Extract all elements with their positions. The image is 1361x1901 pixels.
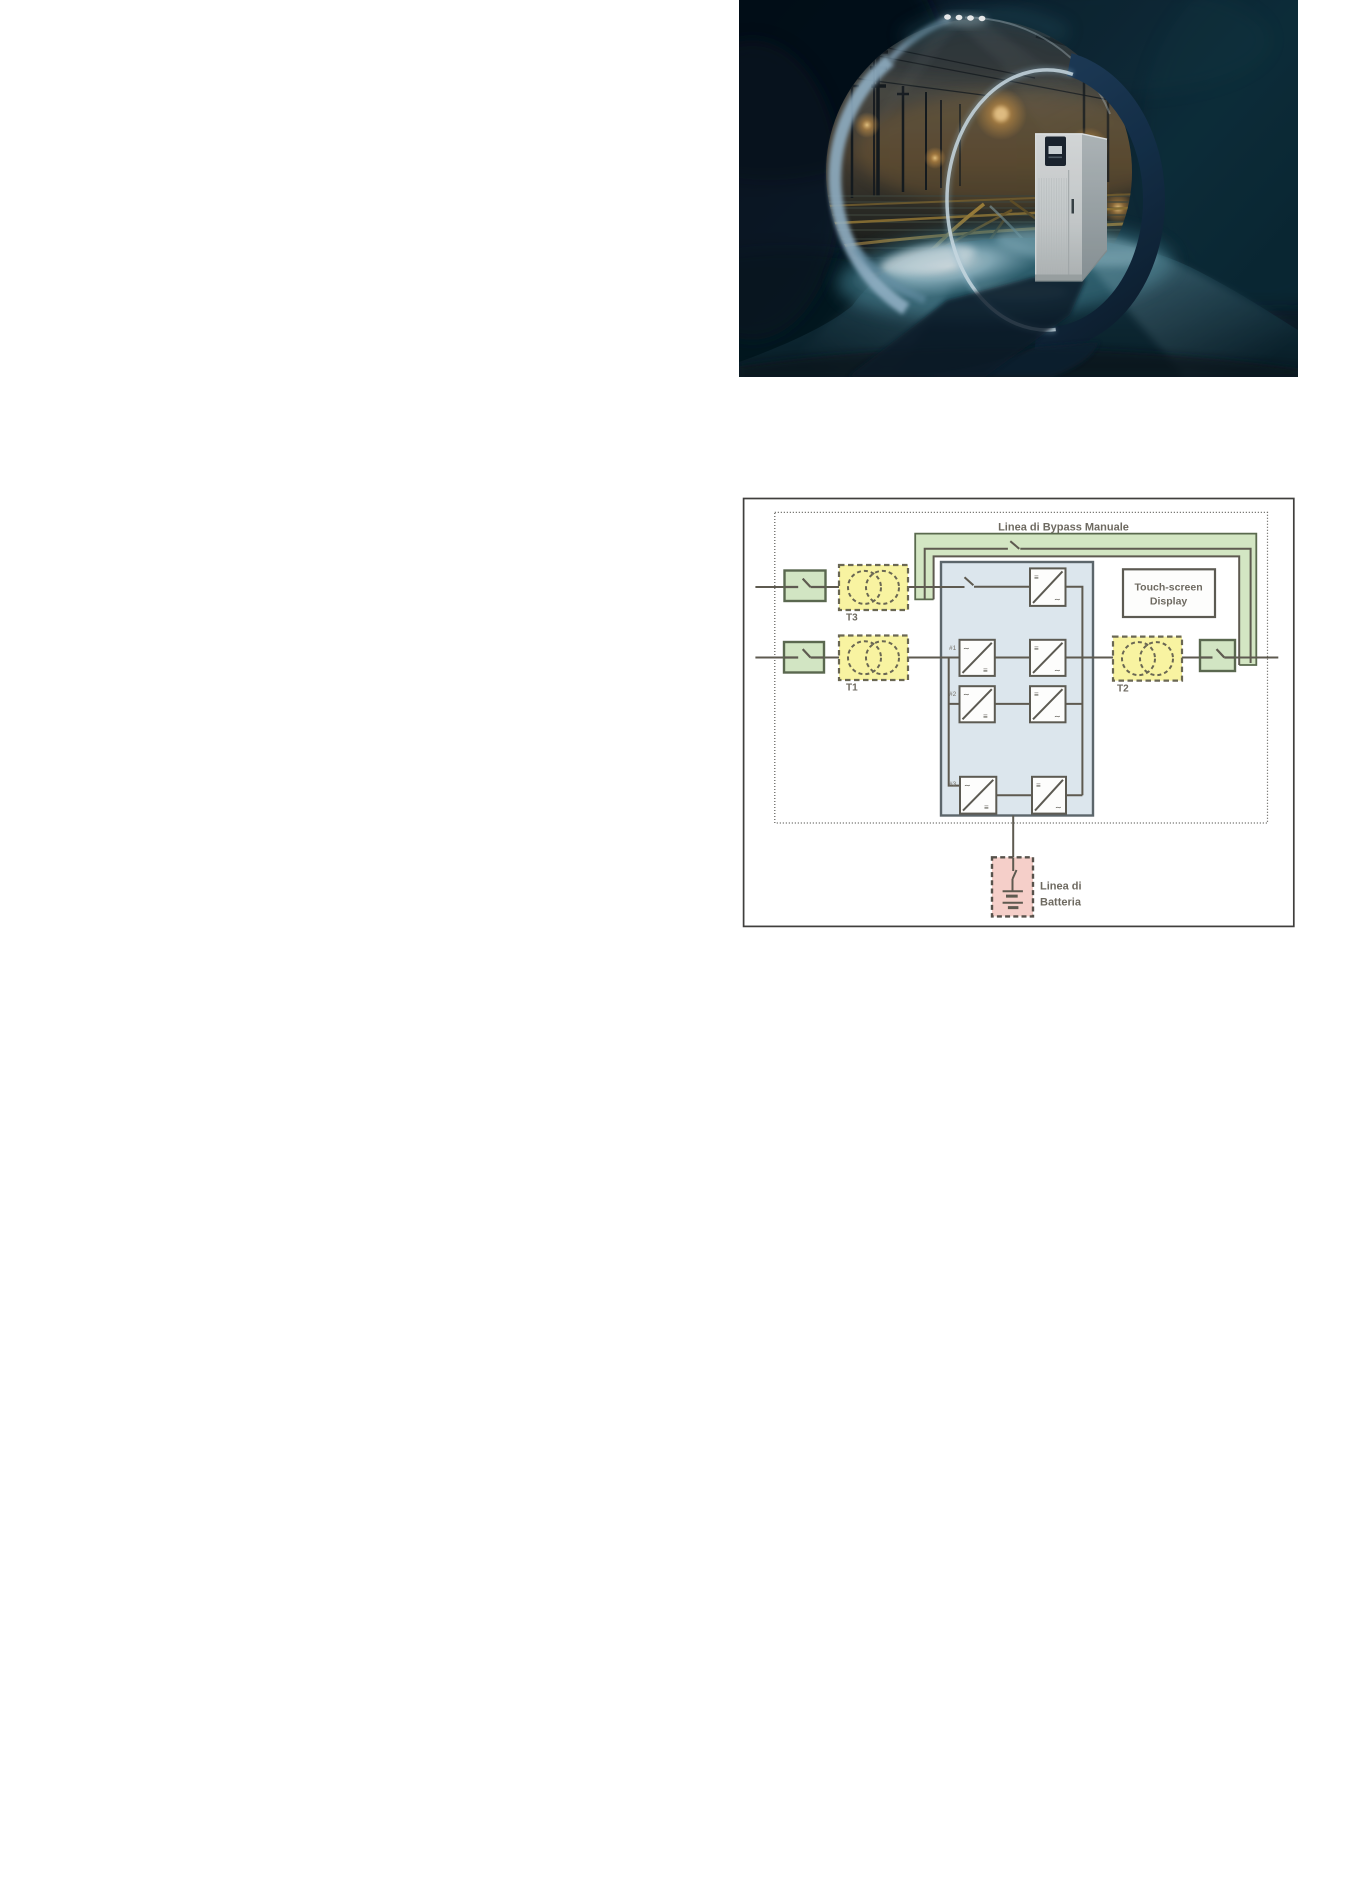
svg-text:Linea di Bypass Manuale: Linea di Bypass Manuale — [998, 522, 1129, 534]
svg-text:∼: ∼ — [1054, 666, 1061, 675]
svg-text:∼: ∼ — [1054, 595, 1061, 604]
svg-text:T2: T2 — [1117, 684, 1129, 695]
svg-text:≡: ≡ — [1036, 781, 1041, 790]
svg-text:∼: ∼ — [964, 781, 971, 790]
svg-text:≡: ≡ — [983, 666, 988, 675]
svg-text:≡: ≡ — [984, 803, 989, 812]
svg-text:∼: ∼ — [1054, 712, 1061, 721]
svg-text:≡: ≡ — [1034, 644, 1039, 653]
svg-text:Linea di: Linea di — [1040, 881, 1082, 893]
svg-text:∼: ∼ — [963, 690, 970, 699]
svg-text:≡: ≡ — [1034, 690, 1039, 699]
svg-text:∼: ∼ — [963, 644, 970, 653]
svg-text:T1: T1 — [846, 683, 858, 694]
svg-text:Display: Display — [1150, 596, 1188, 608]
svg-text:Batteria: Batteria — [1040, 897, 1082, 909]
svg-text:∼: ∼ — [1055, 803, 1062, 812]
svg-text:#1: #1 — [949, 645, 957, 652]
svg-text:≡: ≡ — [983, 712, 988, 721]
svg-text:#3: #3 — [949, 781, 957, 788]
svg-text:Touch-screen: Touch-screen — [1135, 582, 1203, 594]
svg-text:T3: T3 — [846, 613, 858, 624]
svg-text:#2: #2 — [949, 691, 957, 698]
svg-text:≡: ≡ — [1034, 573, 1039, 582]
